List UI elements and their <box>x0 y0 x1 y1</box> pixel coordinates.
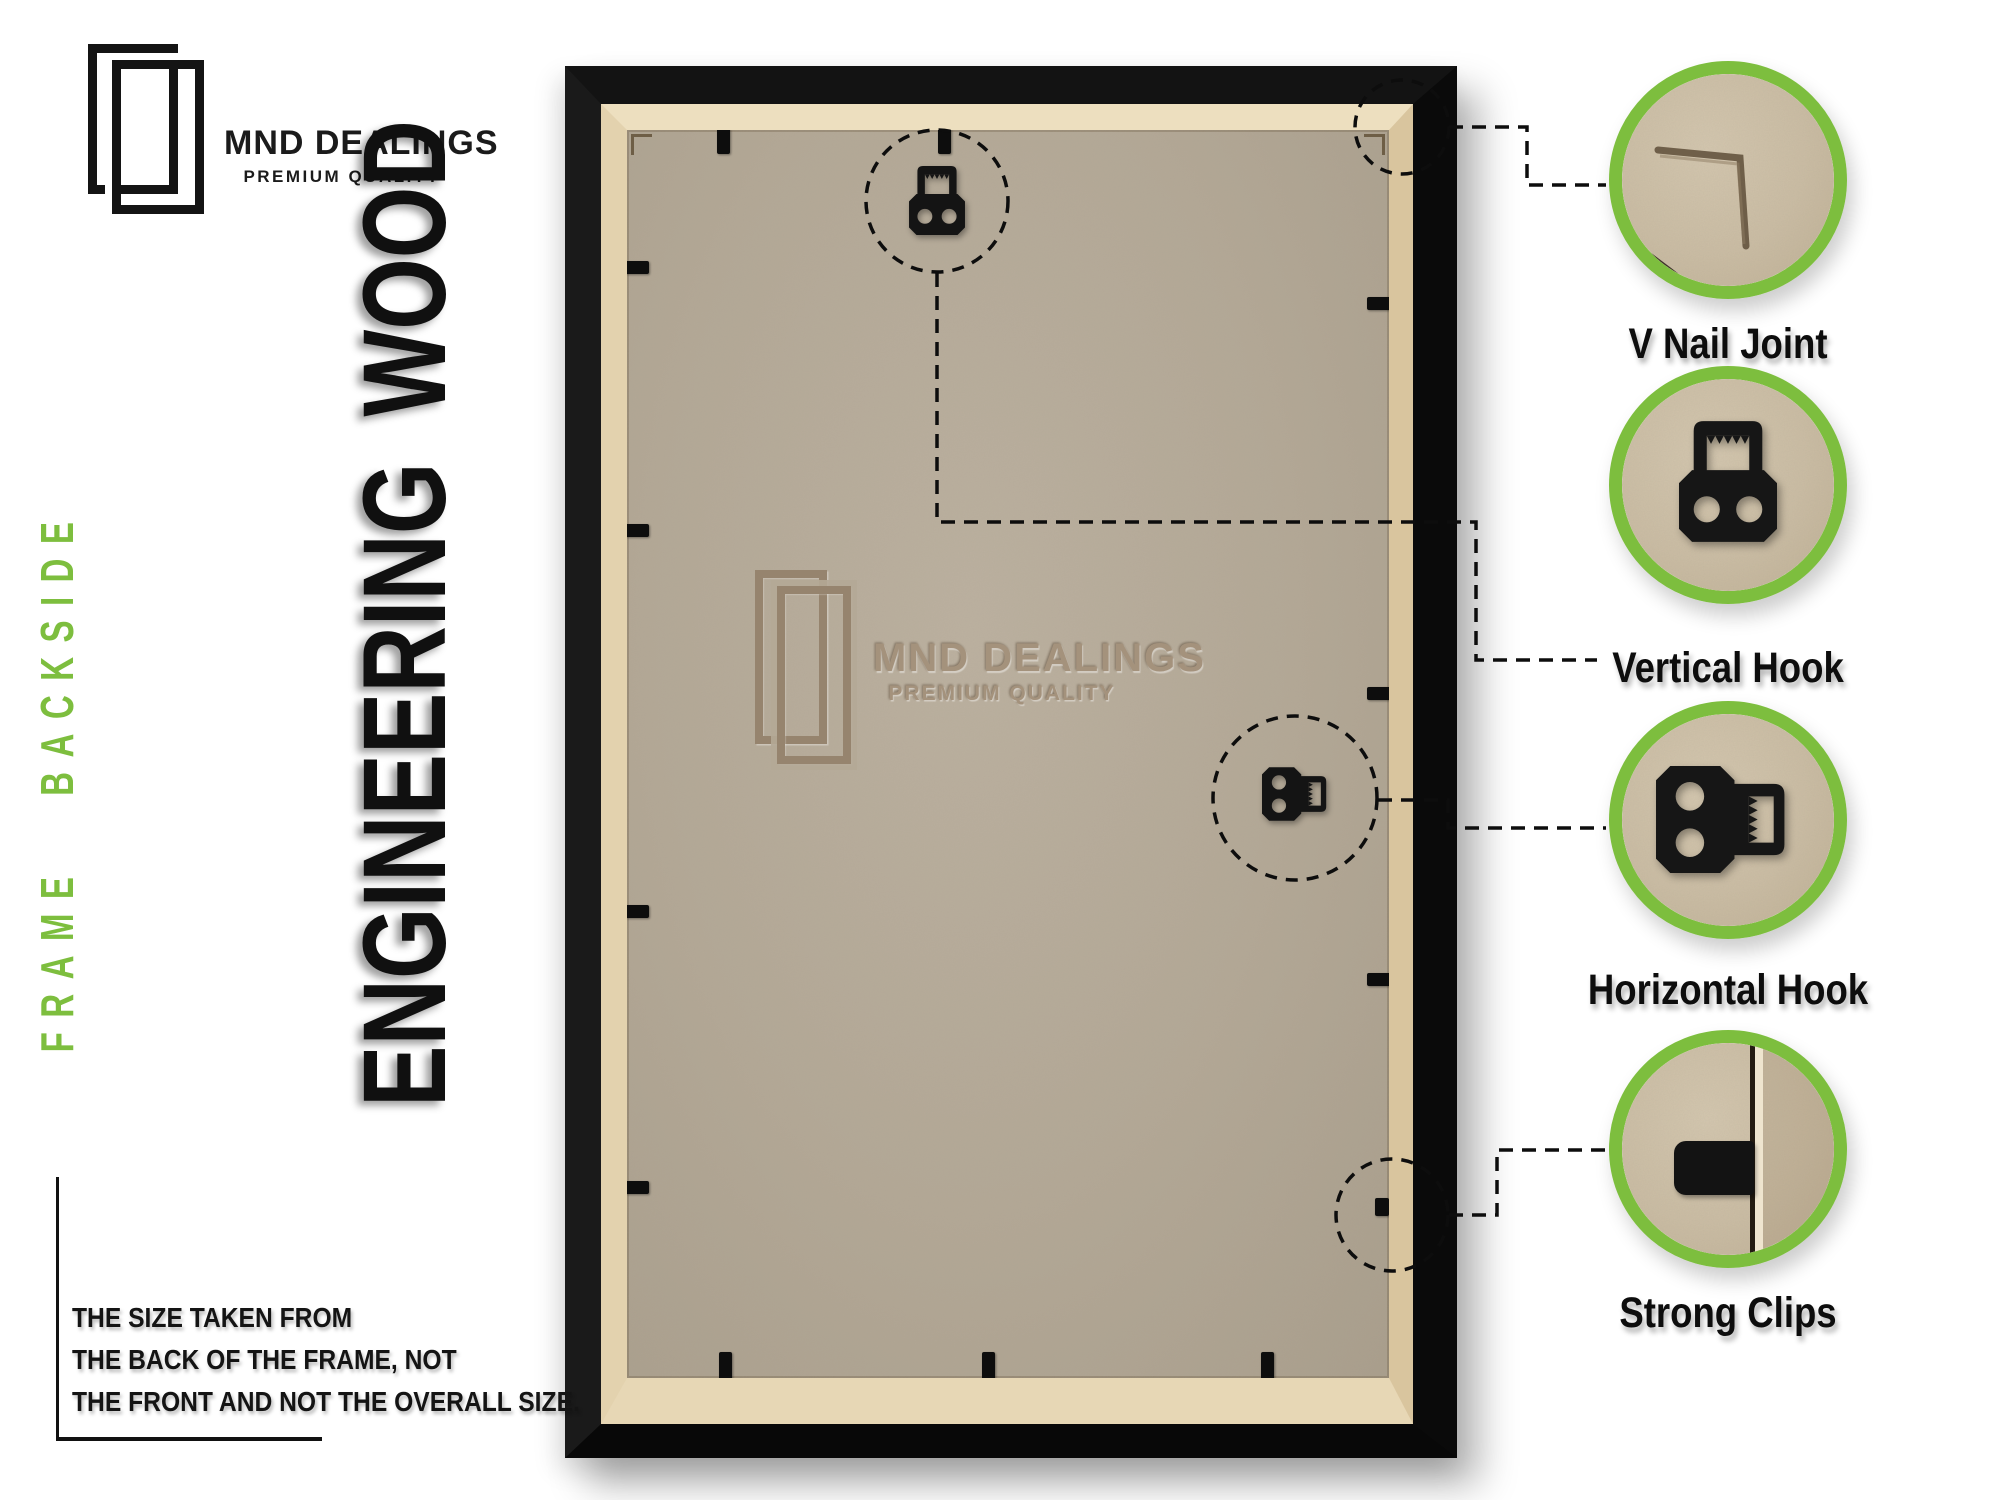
callout-label-v-nail-joint: V Nail Joint <box>1558 320 1898 369</box>
vertical-hook-icon <box>909 166 965 235</box>
frame-clip <box>627 905 649 918</box>
corner-mark-icon <box>1364 134 1385 155</box>
frame-edge-highlight <box>1755 1043 1763 1255</box>
frame-edge-shade <box>1763 1043 1834 1255</box>
vertical-hook-icon <box>1679 421 1777 542</box>
strong-clip-icon <box>1674 1141 1754 1195</box>
v-nail-groove-icon <box>1622 74 1834 286</box>
frame-clip <box>627 524 649 537</box>
callout-horizontal-hook <box>1609 701 1847 939</box>
callout-strong-clips <box>1609 1030 1847 1268</box>
size-note-line3: THE FRONT AND NOT THE OVERALL SIZE. <box>72 1381 580 1423</box>
frame-clip <box>627 1181 649 1194</box>
vertical-hook-photo <box>1622 379 1834 591</box>
poster-canvas: MND DEALINGS PREMIUM QUALITY FRAME BACKS… <box>0 0 2000 1500</box>
note-rule-vertical <box>56 1177 59 1439</box>
side-label-frame-backside: FRAME BACKSIDE <box>29 506 85 1053</box>
leader-v-nail <box>1449 127 1606 185</box>
v-nail-joint-photo <box>1622 74 1834 286</box>
callout-label-horizontal-hook: Horizontal Hook <box>1558 966 1898 1015</box>
frame-clip <box>627 261 649 274</box>
frame-clip <box>717 130 730 154</box>
mdf-back-panel: MND DEALINGS PREMIUM QUALITY <box>627 130 1389 1378</box>
picture-frame-back: MND DEALINGS PREMIUM QUALITY <box>565 66 1457 1458</box>
frame-clip <box>1367 973 1389 986</box>
watermark-frames-icon <box>777 586 851 764</box>
frame-clip <box>1367 687 1389 700</box>
callout-label-strong-clips: Strong Clips <box>1558 1289 1898 1338</box>
callout-vertical-hook <box>1609 366 1847 604</box>
callout-label-vertical-hook: Vertical Hook <box>1558 644 1898 693</box>
frame-clip <box>1375 1198 1389 1216</box>
frame-clip <box>719 1352 732 1378</box>
frame-clip <box>938 130 951 154</box>
horizontal-hook-icon <box>1262 767 1328 821</box>
note-rule-horizontal <box>56 1437 322 1441</box>
frame-clip <box>1367 297 1389 310</box>
callout-v-nail-joint <box>1609 61 1847 299</box>
watermark-tagline: PREMIUM QUALITY <box>873 682 1131 706</box>
frame-clip <box>982 1352 995 1378</box>
horizontal-hook-photo <box>1622 714 1834 926</box>
leader-strong-clip <box>1449 1150 1606 1215</box>
material-label-engineering-wood: ENGINEERING WOOD <box>340 319 470 1107</box>
watermark: MND DEALINGS PREMIUM QUALITY <box>755 560 1155 760</box>
corner-mark-icon <box>631 134 652 155</box>
brand-frames-icon <box>112 60 204 214</box>
size-note-line2: THE BACK OF THE FRAME, NOT <box>72 1339 580 1381</box>
frame-wood-border: MND DEALINGS PREMIUM QUALITY <box>601 104 1413 1424</box>
size-note-line1: THE SIZE TAKEN FROM <box>72 1297 580 1339</box>
frame-clip <box>1261 1352 1274 1378</box>
size-note: THE SIZE TAKEN FROM THE BACK OF THE FRAM… <box>72 1297 580 1423</box>
strong-clips-photo <box>1622 1043 1834 1255</box>
watermark-name: MND DEALINGS <box>873 636 1206 681</box>
horizontal-hook-icon <box>1656 766 1788 873</box>
